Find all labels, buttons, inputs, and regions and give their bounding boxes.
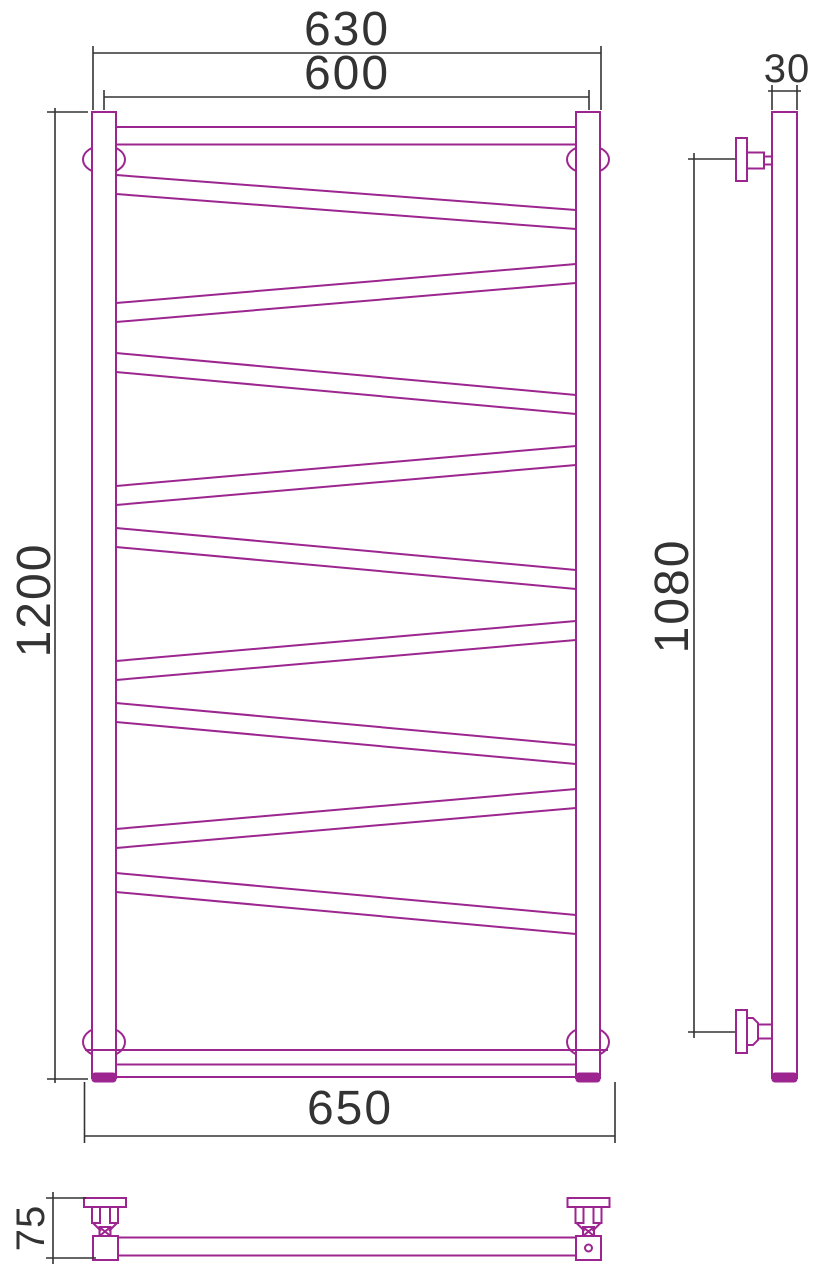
rail-6 [116, 621, 576, 661]
rail-7 [116, 703, 576, 745]
plan-bracket-right [568, 1198, 610, 1236]
side-bracket-bottom [736, 1010, 772, 1053]
right-post [576, 112, 600, 1078]
rail-8 [116, 789, 576, 829]
rail-1 [116, 175, 576, 210]
right-post-foot [576, 1073, 600, 1082]
plan-right-post-section [576, 1236, 601, 1260]
dim-label-600: 600 [304, 47, 390, 100]
dim-label-650: 650 [307, 1082, 393, 1135]
side-post [772, 112, 797, 1078]
top-crossbar [116, 127, 576, 145]
rail-9 [116, 873, 576, 915]
plan-left-post-section [93, 1236, 118, 1260]
towel-rail-drawing: 630 600 1200 650 30 [0, 0, 819, 1280]
dimension-wall-offset: 75 [9, 1192, 96, 1264]
plan-bracket-left [84, 1198, 126, 1236]
dim-label-1200: 1200 [8, 543, 61, 658]
bracket-plate [736, 138, 747, 181]
technical-drawing-canvas: 630 600 1200 650 30 [0, 0, 819, 1280]
left-post [92, 112, 116, 1078]
bracket-plate [568, 1198, 610, 1207]
rail-4 [116, 446, 576, 486]
zigzag-rails [116, 175, 576, 934]
dim-label-1080: 1080 [646, 539, 699, 654]
dimension-width-mounting: 600 [104, 47, 589, 110]
side-post-foot [772, 1073, 797, 1082]
union-nut [747, 1018, 758, 1045]
dim-label-30: 30 [764, 47, 811, 91]
dimensions: 630 600 1200 650 30 [8, 3, 810, 1264]
left-post-foot [92, 1073, 116, 1082]
bracket-plate [84, 1198, 126, 1207]
bottom-crossbar [85, 1050, 608, 1077]
dimension-width-bottom: 650 [85, 1082, 616, 1143]
dimension-height-mounting: 1080 [646, 153, 735, 1038]
bracket-plate [736, 1010, 747, 1053]
dimension-tube-width: 30 [764, 47, 811, 110]
rail-3 [116, 353, 576, 395]
side-bracket-top [736, 138, 772, 181]
front-view [83, 112, 609, 1082]
dim-label-75: 75 [9, 1205, 53, 1252]
rail-5 [116, 528, 576, 570]
side-view [736, 112, 797, 1082]
rail-2 [116, 264, 576, 303]
dimension-height-overall: 1200 [8, 108, 88, 1083]
plan-view [84, 1198, 610, 1260]
